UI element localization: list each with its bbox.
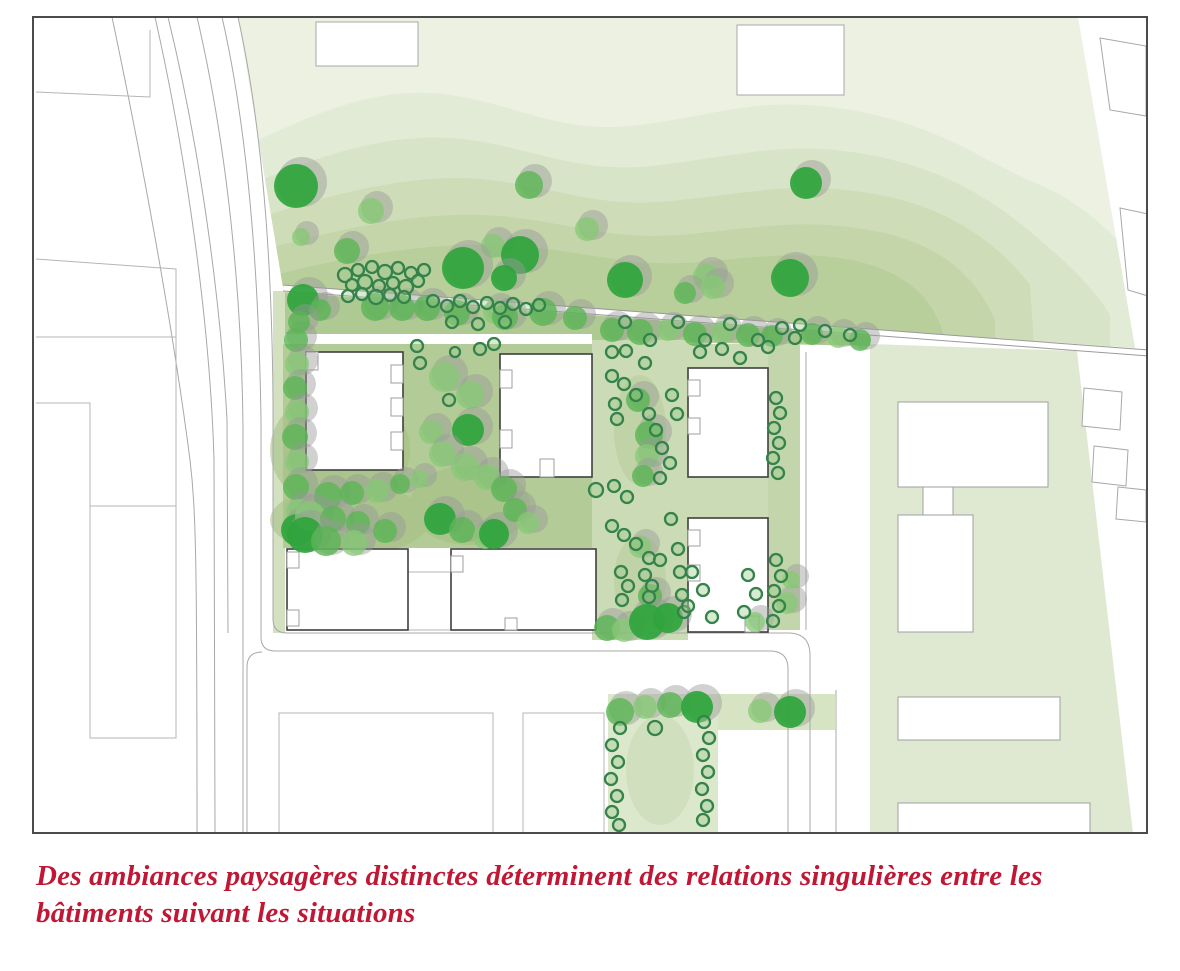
shrub <box>666 389 678 401</box>
shrub <box>411 340 423 352</box>
tree-canopy <box>334 238 360 264</box>
tree-canopy <box>274 164 318 208</box>
tree-canopy <box>674 282 696 304</box>
shrub <box>454 295 466 307</box>
shrub <box>686 566 698 578</box>
shrub <box>612 756 624 768</box>
tree-canopy <box>358 198 384 224</box>
tree-canopy <box>341 530 367 556</box>
shrub <box>768 585 780 597</box>
shrub <box>672 316 684 328</box>
shrub <box>443 394 455 406</box>
tree-canopy <box>790 167 822 199</box>
tree-canopy <box>292 228 310 246</box>
shrub <box>696 783 708 795</box>
shrub <box>467 301 479 313</box>
shrub <box>533 299 545 311</box>
neighbor-building <box>737 25 844 95</box>
shrub <box>446 316 458 328</box>
shrub <box>366 261 378 273</box>
shrub <box>605 773 617 785</box>
shrub <box>358 275 372 289</box>
shrub <box>619 316 631 328</box>
parcel-line <box>36 259 176 738</box>
shrub <box>450 347 460 357</box>
caption-line-1: Des ambiances paysagères distinctes déte… <box>36 858 1156 895</box>
site-plan-page: Des ambiances paysagères distinctes déte… <box>0 0 1180 971</box>
shrub <box>606 806 618 818</box>
tree-canopy <box>517 512 539 534</box>
shrub <box>481 297 493 309</box>
bottom-parcel <box>279 713 493 833</box>
shrub <box>768 422 780 434</box>
shrub <box>618 378 630 390</box>
shrub <box>618 529 630 541</box>
meadow-building <box>898 803 1090 833</box>
shrub <box>392 262 404 274</box>
shrub <box>767 452 779 464</box>
tree-canopy <box>429 441 455 467</box>
shrub <box>342 290 354 302</box>
road-line <box>112 17 197 833</box>
shrub <box>606 739 618 751</box>
tree-canopy <box>288 311 310 333</box>
shrub <box>387 277 399 289</box>
tree-canopy <box>311 526 341 556</box>
strip-gap <box>283 334 592 345</box>
neighbor-building <box>1100 38 1146 116</box>
tree-canopy <box>456 381 484 409</box>
shrub <box>819 325 831 337</box>
shrub <box>499 316 511 328</box>
neighbor-building <box>316 22 418 66</box>
shrub <box>441 300 453 312</box>
shrub <box>773 437 785 449</box>
shrub <box>706 611 718 623</box>
tree-canopy <box>373 519 397 543</box>
shrub <box>427 295 439 307</box>
neighbor-building <box>1082 388 1122 430</box>
shrub <box>613 819 625 831</box>
shrub <box>414 357 426 369</box>
caption: Des ambiances paysagères distinctes déte… <box>36 858 1156 932</box>
shrub <box>650 424 662 436</box>
meadow-building <box>898 402 1048 487</box>
shrub <box>648 721 662 735</box>
shrub <box>654 554 666 566</box>
tree-canopy <box>607 262 643 298</box>
shrub <box>844 329 856 341</box>
shrub <box>639 569 651 581</box>
tree-canopy <box>701 275 725 299</box>
shrub <box>698 716 710 728</box>
shrub <box>697 749 709 761</box>
tree-canopy <box>365 479 389 503</box>
shrub <box>494 302 506 314</box>
shrub <box>606 346 618 358</box>
shrub <box>472 318 484 330</box>
shrub <box>702 766 714 778</box>
shrub <box>774 407 786 419</box>
shrub <box>630 389 642 401</box>
bottom-parcel <box>523 713 604 833</box>
site-plan-drawing <box>0 0 1180 971</box>
tree-canopy <box>774 696 806 728</box>
shrub <box>734 352 746 364</box>
shrub <box>716 343 728 355</box>
building-block <box>287 549 408 630</box>
shrub <box>644 334 656 346</box>
tree-canopy <box>633 695 657 719</box>
connector-structure <box>408 572 451 630</box>
meadow-building <box>898 515 973 632</box>
shrub <box>682 600 694 612</box>
shrub <box>697 814 709 826</box>
neighbor-building <box>1092 446 1128 486</box>
shrub <box>674 566 686 578</box>
shrub <box>616 594 628 606</box>
shrub <box>664 457 676 469</box>
shrub <box>352 264 364 276</box>
shrub <box>770 392 782 404</box>
tree-canopy <box>632 465 654 487</box>
shrub <box>697 584 709 596</box>
shrub <box>772 467 784 479</box>
shrub <box>474 343 486 355</box>
shrub <box>520 303 532 315</box>
shrub <box>789 332 801 344</box>
neighbor-building <box>1116 487 1146 522</box>
shrub <box>654 472 666 484</box>
shrub <box>622 580 634 592</box>
tree-canopy <box>390 474 410 494</box>
shrub <box>620 345 632 357</box>
shrub <box>699 334 711 346</box>
parcel-line <box>36 30 150 97</box>
road-line <box>168 17 228 633</box>
neighbor-building <box>1120 208 1148 296</box>
shrub <box>794 319 806 331</box>
shrub <box>615 566 627 578</box>
building-block <box>451 549 596 630</box>
tree-canopy <box>429 362 459 392</box>
shrub <box>770 554 782 566</box>
shrub <box>672 543 684 555</box>
shrub <box>384 289 396 301</box>
shrub <box>742 569 754 581</box>
shrub <box>643 591 655 603</box>
tree-canopy <box>479 519 509 549</box>
tree-canopy <box>449 517 475 543</box>
shrub <box>776 322 788 334</box>
shrub <box>398 291 410 303</box>
shrub <box>694 346 706 358</box>
tree-canopy <box>657 692 683 718</box>
tree-canopy <box>563 306 587 330</box>
tree-canopy <box>575 217 599 241</box>
shrub <box>488 338 500 350</box>
shrub <box>762 341 774 353</box>
shrub <box>656 442 668 454</box>
shrub <box>589 483 603 497</box>
shrub <box>507 298 519 310</box>
shrub <box>356 288 368 300</box>
shrub <box>750 588 762 600</box>
shrub <box>614 722 626 734</box>
shrub <box>412 275 424 287</box>
meadow-building <box>898 697 1060 740</box>
shrub <box>665 513 677 525</box>
shrub <box>608 480 620 492</box>
caption-line-2: bâtiments suivant les situations <box>36 895 1156 932</box>
shrub <box>643 408 655 420</box>
tree-canopy <box>410 470 428 488</box>
shrub <box>630 538 642 550</box>
shrub <box>767 615 779 627</box>
shrub <box>611 790 623 802</box>
shrub <box>724 318 736 330</box>
building-block <box>306 352 403 470</box>
cross-band <box>688 477 768 518</box>
shrub <box>701 800 713 812</box>
shrub <box>609 398 621 410</box>
shrub <box>671 408 683 420</box>
street-corner <box>247 652 262 833</box>
shrub <box>369 290 383 304</box>
shrub <box>611 413 623 425</box>
tree-canopy <box>442 247 484 289</box>
shrub <box>621 491 633 503</box>
tree-canopy <box>748 699 772 723</box>
tree-canopy <box>491 265 517 291</box>
tree-canopy <box>771 259 809 297</box>
shrub <box>738 606 750 618</box>
meadow-building-connector <box>923 487 953 515</box>
shrub <box>703 732 715 744</box>
road-line <box>197 17 243 833</box>
shrub <box>773 600 785 612</box>
shrub <box>606 520 618 532</box>
shrub <box>639 357 651 369</box>
tree-canopy <box>515 171 543 199</box>
shrub <box>606 370 618 382</box>
shrub <box>775 570 787 582</box>
